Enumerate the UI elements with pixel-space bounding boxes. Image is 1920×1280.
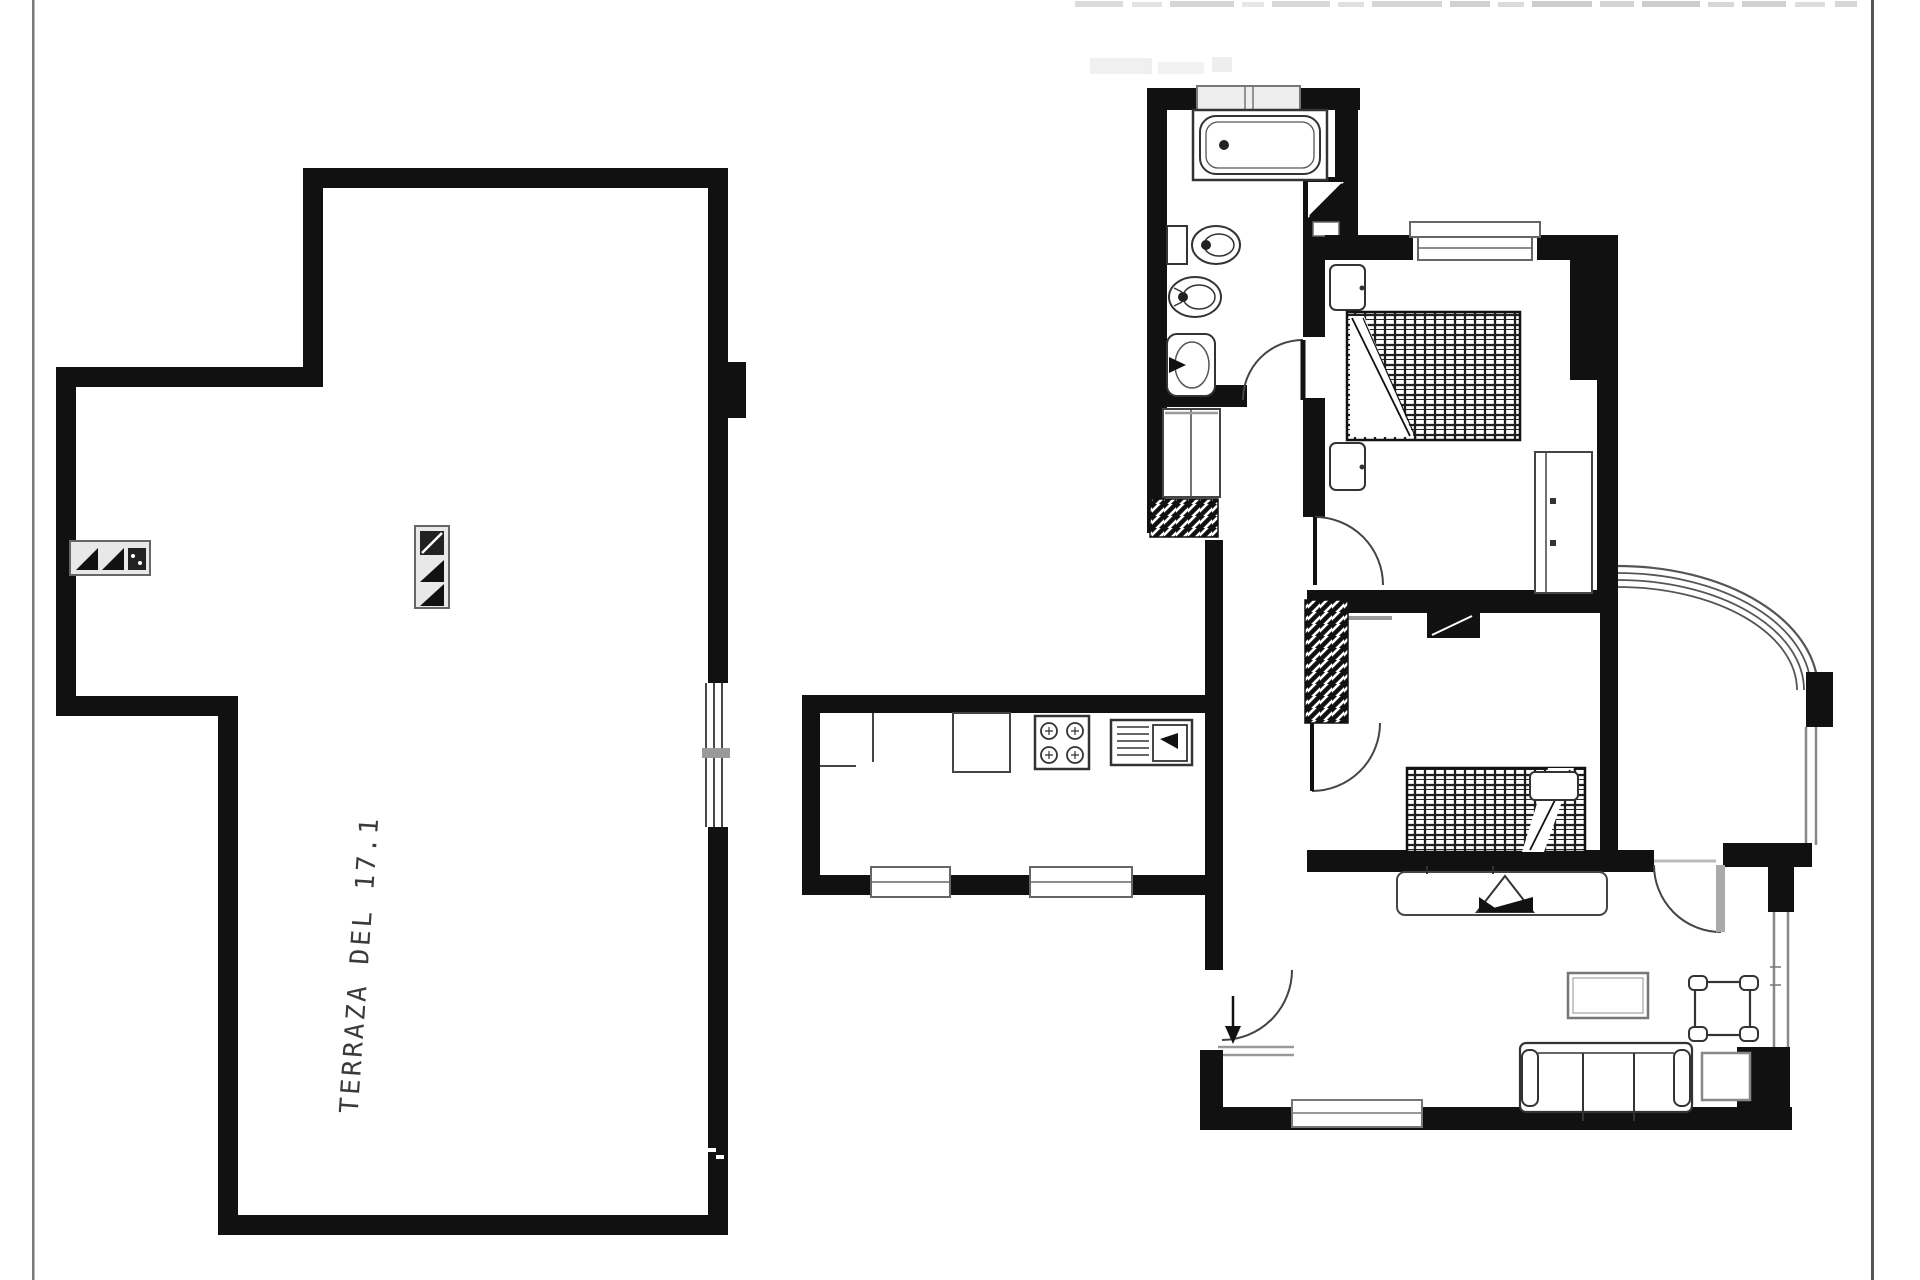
floor-plan-sheet: TERRAZA DEL 17.1 <box>0 0 1920 1280</box>
entry-direction-arrow <box>1225 996 1241 1044</box>
living-bottom-window <box>1292 1100 1422 1127</box>
kitchen-left-wall <box>802 695 820 895</box>
bathroom-right-wall-lower <box>1303 240 1325 337</box>
living-right-pillar <box>1768 865 1794 912</box>
terrace-marker-vertical <box>415 526 449 608</box>
living-bottom-wall <box>1200 1107 1792 1130</box>
bathroom-right-wall-upper <box>1335 88 1358 180</box>
living-door <box>1654 861 1725 932</box>
bleedthrough-smudge <box>1090 57 1232 74</box>
kitchen <box>802 695 1223 897</box>
bedroom2-door <box>1312 723 1380 791</box>
bedroom1-closet <box>1535 452 1592 593</box>
bedroom1-top-wall-a <box>1325 235 1413 260</box>
side-table <box>1702 1053 1750 1100</box>
terrace-outline-wall <box>66 178 718 1225</box>
terrace-wall-tab <box>726 362 746 418</box>
bedroom1-window <box>1410 222 1540 260</box>
bedroom1-nightstand-top <box>1330 265 1365 310</box>
sofa <box>1520 1043 1692 1121</box>
bedroom1-door <box>1315 517 1383 585</box>
kitchen-window-right <box>1030 867 1132 897</box>
bedroom1-top-wall-b <box>1537 235 1618 260</box>
bedroom-1 <box>1303 222 1618 618</box>
living-left-wall <box>1200 1050 1223 1130</box>
kitchen-window-left <box>871 867 950 897</box>
bathtub <box>1193 110 1327 180</box>
kitchen-bottom-wall-c <box>1130 875 1223 895</box>
corridor-wall <box>1205 540 1223 970</box>
bedroom1-right-pillar <box>1570 258 1618 380</box>
toilet <box>1167 226 1240 264</box>
terrace: TERRAZA DEL 17.1 <box>66 178 746 1225</box>
page-border-right <box>1871 0 1874 1280</box>
armchair <box>1689 976 1758 1041</box>
kitchen-bottom-wall-a <box>802 875 873 895</box>
bedroom2-bottom-wall <box>1307 850 1654 872</box>
bay-pillar <box>1806 672 1833 727</box>
bedroom1-right-wall <box>1597 380 1618 610</box>
bed-1 <box>1347 312 1520 440</box>
living-top-wall-right <box>1723 843 1812 867</box>
kitchen-counter <box>820 713 1010 772</box>
bidet <box>1169 277 1221 317</box>
entry-threshold <box>1218 1047 1294 1055</box>
page-border-left <box>32 0 35 1280</box>
bedroom2-left-pillar-hatched <box>1305 600 1348 723</box>
bed-2 <box>1407 768 1585 852</box>
bay-window <box>1618 566 1833 845</box>
terrace-right-window <box>702 683 730 827</box>
kitchen-bottom-wall-b <box>948 875 1032 895</box>
bedroom1-nightstand-bottom <box>1330 443 1365 490</box>
kitchen-stove <box>1035 716 1089 769</box>
bedroom-2 <box>1305 600 1654 872</box>
sideboard <box>1397 866 1607 915</box>
living-right-window <box>1770 912 1788 1047</box>
coffee-table <box>1568 973 1648 1018</box>
bedroom2-right-wall <box>1600 607 1618 853</box>
kitchen-top-wall <box>802 695 1205 713</box>
washbasin <box>1167 334 1215 396</box>
bay-side-window <box>1806 727 1816 845</box>
cropped-header-text-smudge <box>1075 1 1857 7</box>
bathroom-door <box>1243 340 1303 400</box>
terrace-marker-horizontal <box>70 541 150 575</box>
living-room <box>1200 843 1812 1130</box>
bedroom1-left-wall <box>1303 398 1325 517</box>
kitchen-sink <box>1111 720 1192 765</box>
entry <box>1218 970 1294 1055</box>
bathroom-left-wall <box>1147 88 1167 410</box>
bathroom-shaft-corner <box>1303 177 1358 240</box>
hall-closet <box>1163 409 1220 497</box>
hall-shaft-hatched <box>1150 499 1218 537</box>
floor-plan-svg: TERRAZA DEL 17.1 <box>0 0 1920 1280</box>
bathroom-window <box>1197 86 1300 110</box>
